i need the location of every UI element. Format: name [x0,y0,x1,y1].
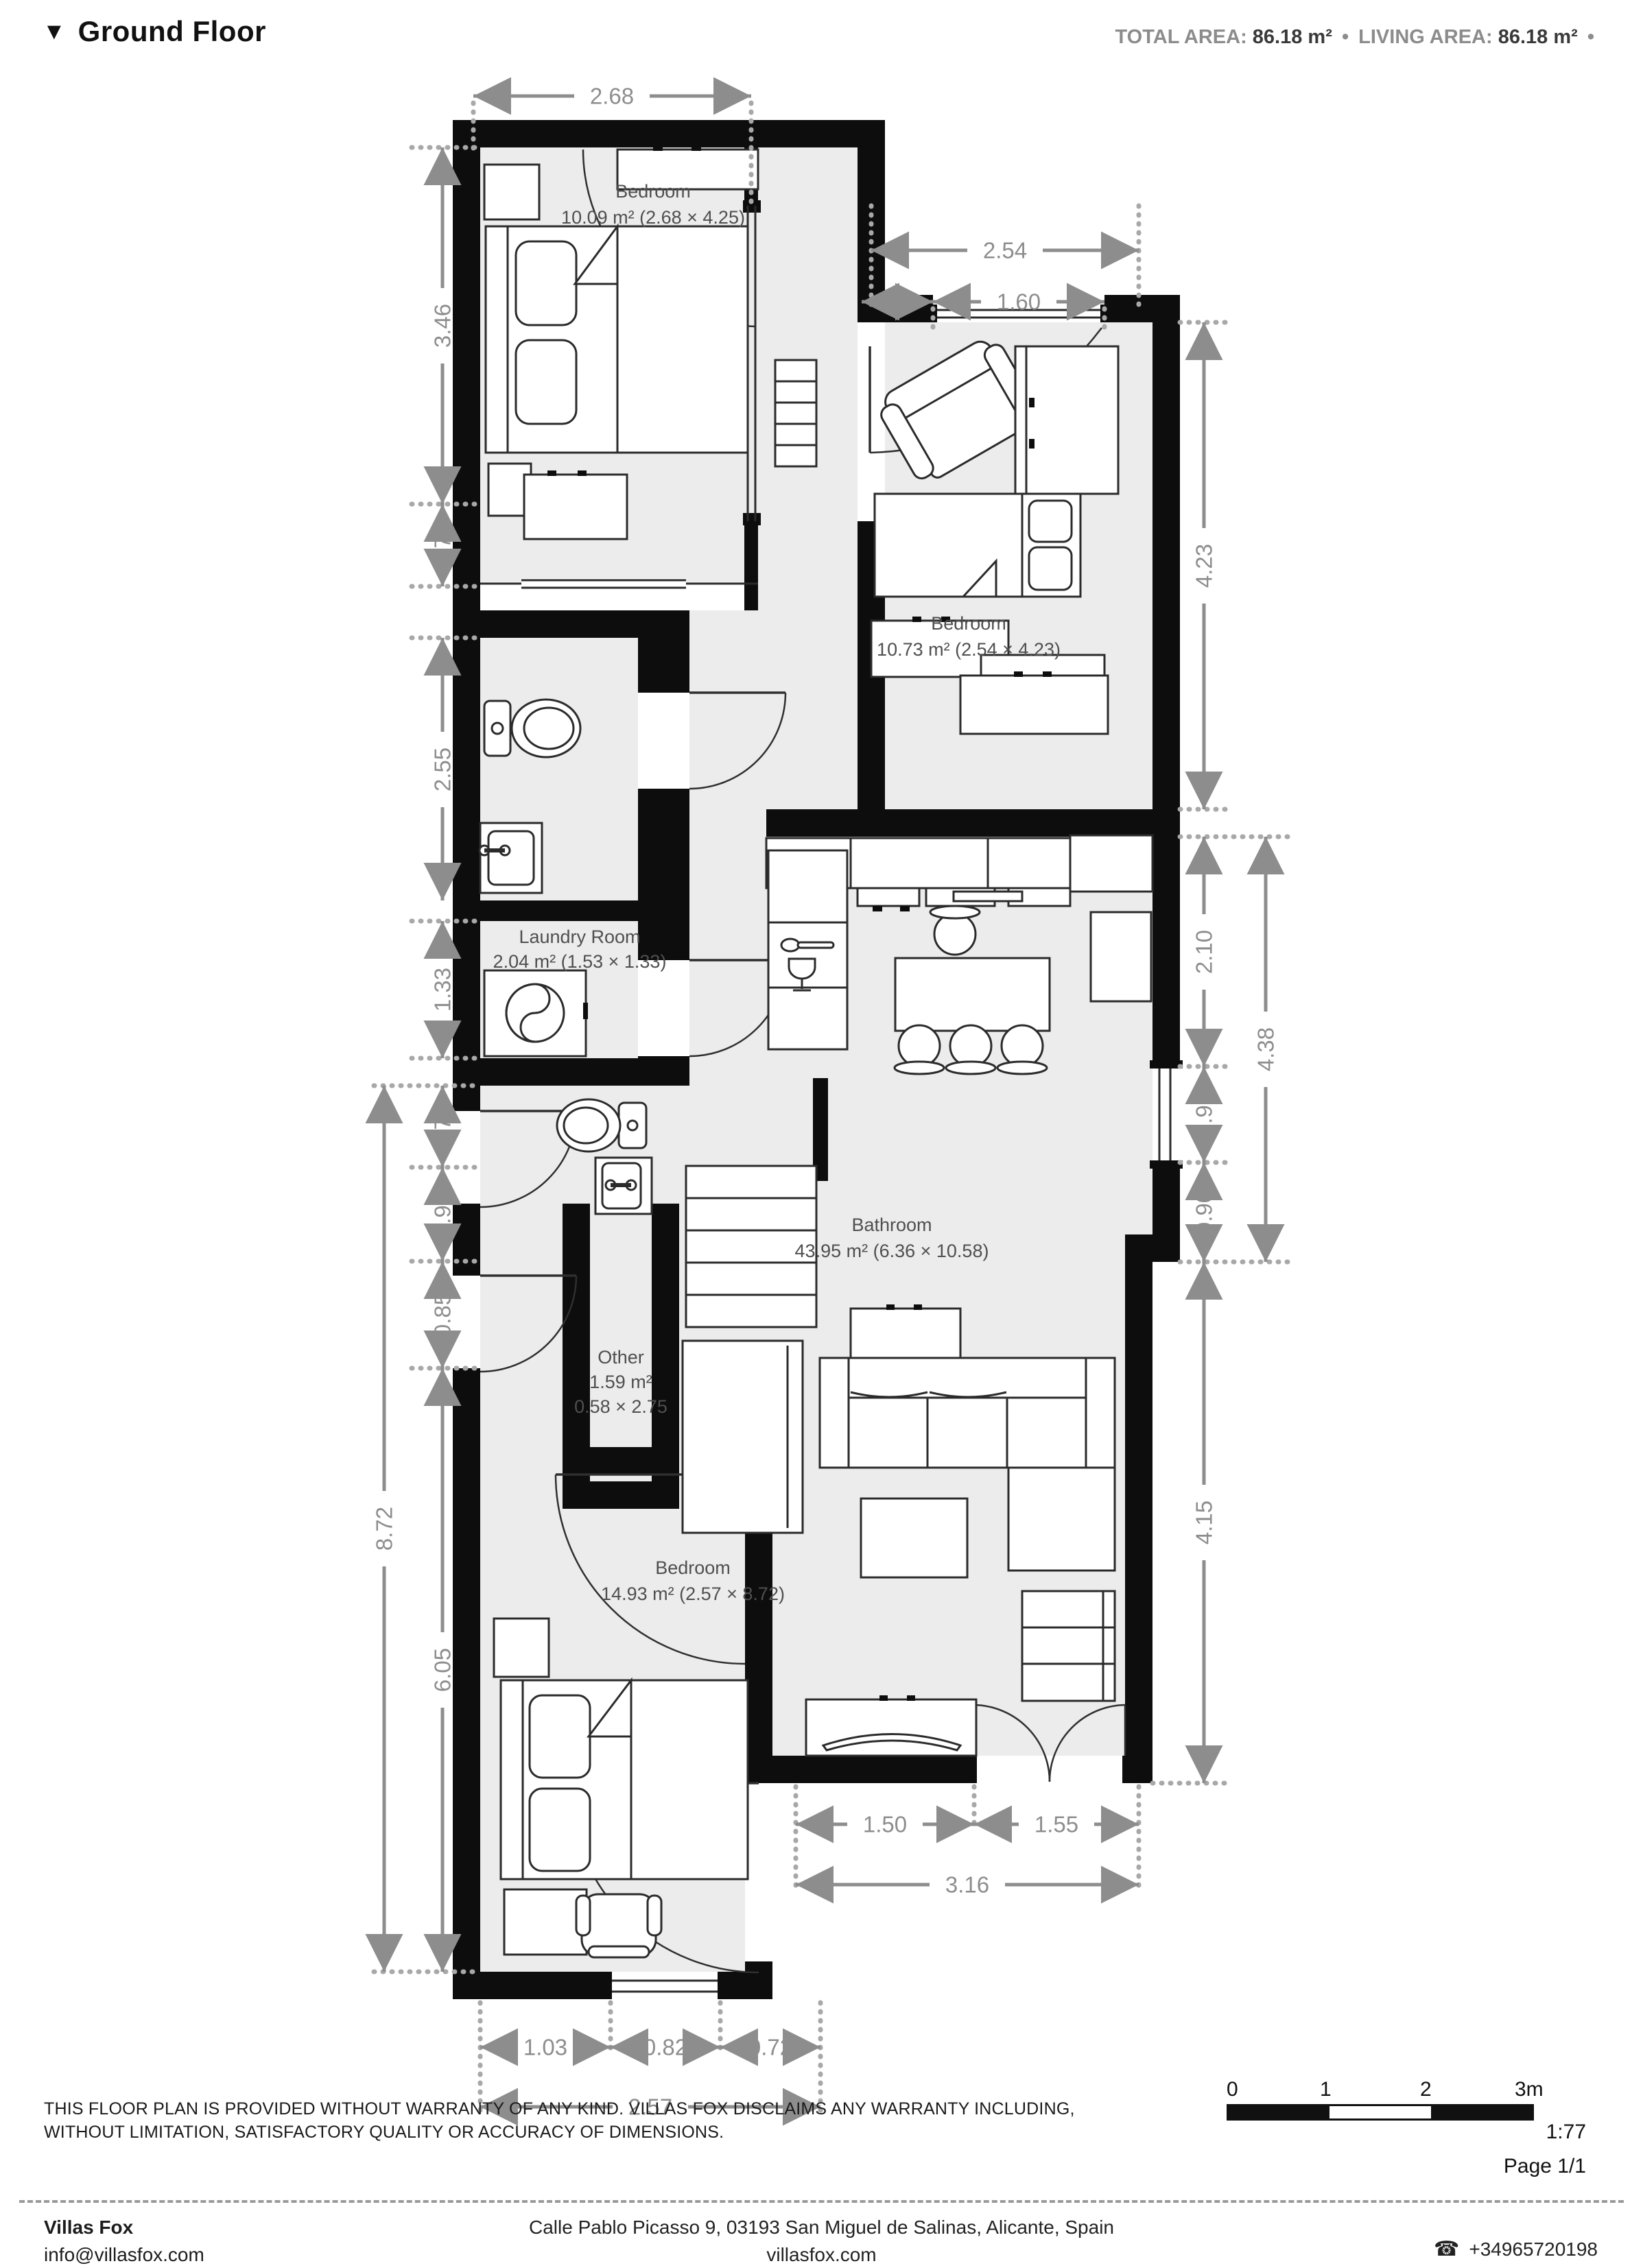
room-size: 1.59 m² [589,1372,652,1392]
double-bed-icon [501,1680,748,1879]
dim-label: 0.85 [430,1293,456,1337]
room-label: Other [598,1347,644,1368]
dim-label: 4.38 [1253,1027,1279,1071]
wardrobe-icon [1015,346,1118,494]
scale-bar-graphic [1227,2104,1534,2121]
office-chair-icon [576,1894,661,1957]
phone-number: +34965720198 [1469,2239,1598,2260]
disclaimer: THIS FLOOR PLAN IS PROVIDED WITHOUT WARR… [44,2097,1075,2144]
scale-tick: 2 [1420,2078,1432,2101]
footer-divider [19,2200,1624,2203]
dim-label: 1.60 [997,289,1041,315]
dim-label: 1.55 [1035,1812,1078,1837]
dim-label: 0.90 [1192,1191,1217,1234]
address-line: Calle Pablo Picasso 9, 03193 San Miguel … [0,2214,1643,2241]
page-number: Page 1/1 [1504,2155,1586,2178]
dim-label: 0.78 [430,523,456,567]
dim-label: 0.82 [643,2035,687,2060]
website: villasfox.com [0,2241,1643,2268]
footer-phone: ☎+34965720198 [1434,2237,1598,2261]
cabinet-icon [1091,912,1151,1001]
sink-icon [480,823,542,893]
room-size: 10.09 m² (2.68 × 4.25) [561,207,745,228]
room-size: 2.04 m² (1.53 × 1.33) [493,951,667,972]
room-size: 14.93 m² (2.57 × 8.72) [601,1584,785,1604]
kitchen-cabinet-column-icon [768,850,847,1049]
disclaimer-line2: WITHOUT LIMITATION, SATISFACTORY QUALITY… [44,2121,1075,2144]
toilet-icon [557,1099,646,1151]
double-bed-icon [486,226,748,453]
room-label: Bathroom [851,1215,932,1235]
room-label: Laundry Room [519,927,640,947]
room-size: 10.73 m² (2.54 × 4.23) [877,639,1061,660]
shelf-cabinet-icon [1022,1591,1115,1701]
dim-label: 4.15 [1192,1501,1217,1544]
room-label: Bedroom [931,613,1006,634]
dim-label: 8.72 [372,1507,397,1551]
dim-label: 4.23 [1192,544,1217,588]
dim-label: 2.54 [983,238,1027,263]
dim-label: 2.10 [1192,930,1217,974]
room-label: Bedroom [615,181,691,202]
sink-icon [595,1158,652,1214]
scale-ratio: 1:77 [1546,2121,1586,2144]
desk-icon [524,470,627,539]
dim-label: 0.79 [430,1105,456,1149]
scale-tick: 3m [1515,2078,1544,2101]
nightstand-icon [494,1619,549,1677]
dim-label: 0.91 [1192,1093,1217,1136]
sideboard-icon [851,1304,960,1358]
dim-label: 0.91 [430,1193,456,1237]
dim-label: 6.05 [430,1648,456,1692]
scale-tick: 1 [1320,2078,1332,2101]
dim-label: 0.72 [748,2035,792,2060]
footer-address: Calle Pablo Picasso 9, 03193 San Miguel … [0,2214,1643,2268]
coffee-table-icon [861,1499,967,1577]
scale-ticks: 0 1 2 3m [1227,2078,1586,2103]
dim-label: 1.50 [863,1812,907,1837]
dim-label: 0.69 [875,289,919,315]
shelf-icon [775,360,816,466]
nightstand-icon [484,165,539,219]
dim-label: 2.55 [430,748,456,791]
toilet-icon [484,700,580,757]
dim-label: 3.16 [945,1872,989,1898]
desk-icon [504,1889,587,1955]
floorplan-page: ▼ Ground Floor TOTAL AREA: 86.18 m² • LI… [0,0,1643,2268]
room-size: 0.58 × 2.75 [574,1396,667,1417]
floor-plan: Bedroom 10.09 m² (2.68 × 4.25) Bedroom 1… [0,0,1643,2268]
room-size: 43.95 m² (6.36 × 10.58) [795,1241,989,1261]
cabinet-icon [683,1341,803,1533]
tv-console-icon [806,1695,976,1756]
dim-label: 1.03 [523,2035,567,2060]
dim-label: 1.33 [430,968,456,1012]
disclaimer-line1: THIS FLOOR PLAN IS PROVIDED WITHOUT WARR… [44,2097,1075,2121]
scale-bar: 0 1 2 3m 1:77 Page 1/1 [1227,2078,1586,2121]
dim-label: 2.68 [590,84,634,109]
single-bed-icon [875,494,1080,597]
dim-label: 3.46 [430,304,456,348]
sideboard-icon [960,655,1108,734]
scale-tick: 0 [1227,2078,1238,2101]
phone-icon: ☎ [1434,2238,1459,2260]
room-label: Bedroom [655,1557,731,1578]
washing-machine-icon [484,970,588,1056]
